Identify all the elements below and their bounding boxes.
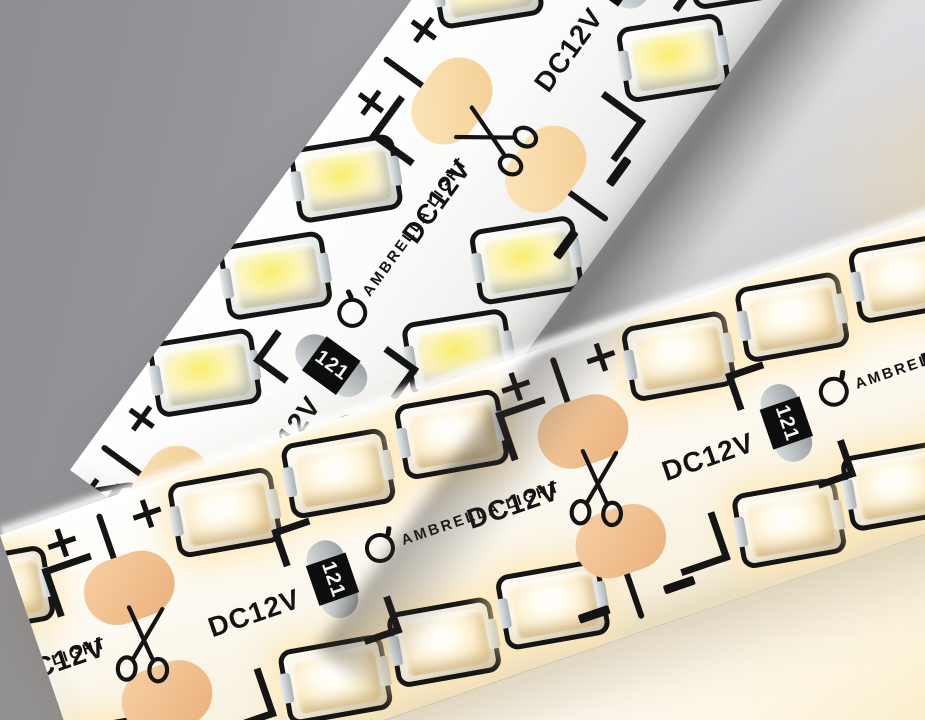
- brand-logo-tick: [839, 370, 846, 381]
- led-chip: [217, 230, 334, 322]
- led-chip: [166, 466, 284, 559]
- led-phosphor: [480, 226, 574, 295]
- cut-line: [96, 513, 119, 564]
- polarity-minus: [606, 156, 632, 187]
- brand-logo-icon: [361, 529, 399, 567]
- led-phosphor: [632, 321, 726, 391]
- led-phosphor: [229, 241, 323, 310]
- scene: 121AMBRELLA LIGHT121AMBRELLA LIGHT121AMB…: [0, 0, 925, 720]
- led-phosphor: [440, 0, 534, 19]
- led-phosphor: [397, 607, 491, 677]
- led-phosphor: [851, 451, 925, 521]
- voltage-label: DC12V: [179, 575, 331, 652]
- voltage-label: DC12V: [632, 419, 784, 496]
- led-phosphor: [158, 338, 252, 407]
- led-chip: [393, 388, 511, 481]
- led-phosphor: [299, 144, 393, 213]
- polarity-plus: +: [572, 326, 629, 386]
- corner-bracket: [253, 329, 307, 383]
- corner-bracket: [212, 667, 277, 720]
- led-chip: [468, 214, 585, 306]
- led-phosphor: [405, 399, 499, 469]
- led-phosphor: [178, 478, 272, 548]
- led-chip: [730, 477, 848, 570]
- led-chip: [620, 310, 738, 403]
- led-phosphor: [291, 438, 385, 508]
- led-phosphor: [745, 282, 839, 352]
- polarity-minus: [663, 576, 696, 595]
- led-phosphor: [288, 645, 382, 715]
- led-chip: [615, 12, 732, 104]
- led-chip: [277, 633, 395, 720]
- cut-line: [622, 568, 645, 619]
- led-phosphor: [506, 570, 600, 640]
- led-phosphor: [859, 243, 925, 313]
- led-chip: [733, 271, 851, 364]
- polarity-plus: +: [118, 482, 175, 542]
- led-chip: [280, 427, 398, 520]
- brand-logo-icon: [815, 373, 853, 411]
- led-chip: [385, 596, 503, 689]
- led-terminal: [430, 0, 446, 8]
- led-phosphor: [0, 556, 45, 626]
- corner-bracket: [666, 511, 731, 576]
- led-chip: [847, 232, 925, 325]
- led-phosphor: [627, 24, 721, 93]
- cut-line: [549, 357, 572, 408]
- led-chip: [839, 439, 925, 532]
- brand-logo-tick: [345, 289, 354, 300]
- brand-logo-icon: [331, 292, 373, 334]
- led-phosphor: [742, 488, 836, 558]
- led-chip: [147, 327, 264, 419]
- cut-line: [564, 187, 610, 222]
- led-chip: [683, 0, 800, 11]
- brand-logo-tick: [385, 526, 392, 537]
